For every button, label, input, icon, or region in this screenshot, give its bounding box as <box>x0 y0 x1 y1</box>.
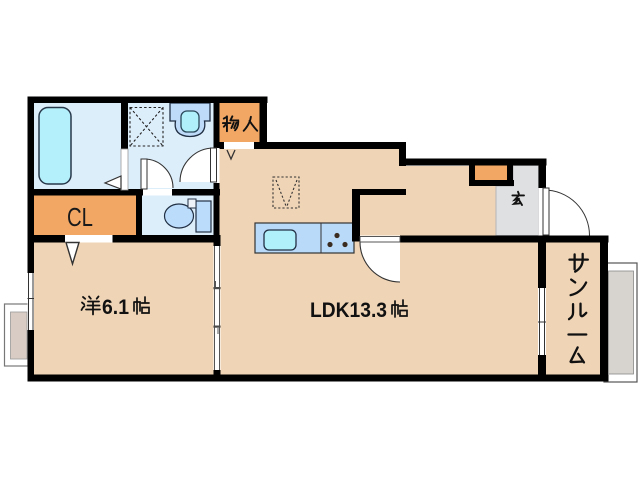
svg-text:6.1: 6.1 <box>102 296 129 319</box>
svg-text:CL: CL <box>67 202 93 232</box>
svg-text:LDK13.3: LDK13.3 <box>310 299 387 322</box>
